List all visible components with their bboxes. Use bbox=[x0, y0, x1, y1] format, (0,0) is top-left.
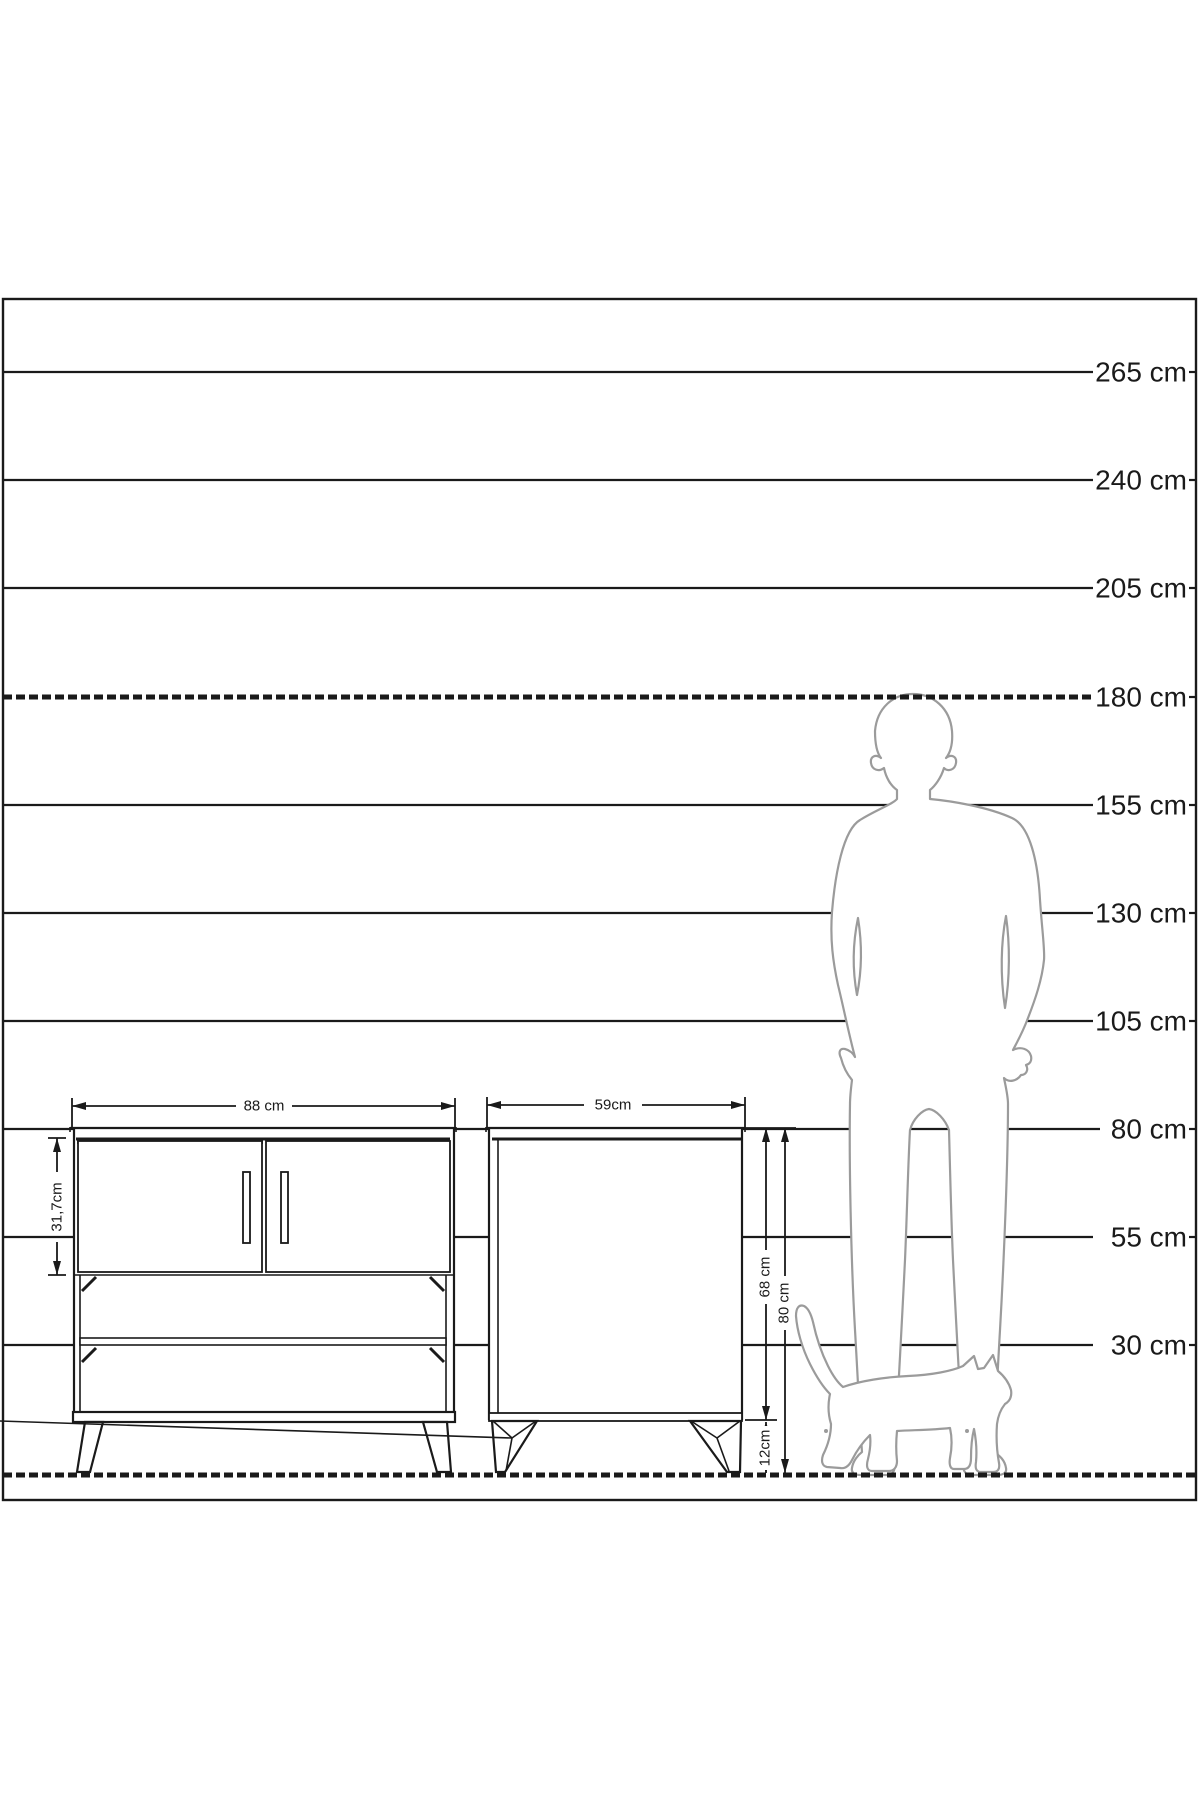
scale-label-55: 55 cm bbox=[1111, 1222, 1187, 1253]
scale-label-130: 130 cm bbox=[1095, 898, 1187, 929]
left-door bbox=[78, 1141, 262, 1272]
right-door-handle bbox=[281, 1172, 288, 1243]
scale-label-205: 205 cm bbox=[1095, 573, 1187, 604]
canvas: 265 cm 240 cm 205 cm 155 cm 130 cm 105 c… bbox=[0, 0, 1200, 1800]
front-width-label: 88 cm bbox=[244, 1098, 285, 1115]
cat-fur-dot-rear bbox=[824, 1429, 828, 1433]
side-view-body-fill bbox=[488, 1128, 743, 1420]
carcass-height-label: 68 cm bbox=[757, 1257, 774, 1298]
front-bottom-panel bbox=[73, 1412, 455, 1422]
side-depth-label: 59cm bbox=[595, 1097, 632, 1114]
cat-fur-dot-front bbox=[965, 1429, 969, 1433]
furniture-scale-diagram: 265 cm 240 cm 205 cm 155 cm 130 cm 105 c… bbox=[0, 0, 1200, 1800]
scale-label-265: 265 cm bbox=[1095, 357, 1187, 388]
middle-shelf bbox=[80, 1338, 446, 1345]
scale-label-80: 80 cm bbox=[1111, 1114, 1187, 1145]
side-bottom-panel bbox=[489, 1413, 742, 1421]
scale-label-105: 105 cm bbox=[1095, 1006, 1187, 1037]
total-height-label: 80 cm bbox=[776, 1283, 793, 1324]
scale-label-180: 180 cm bbox=[1095, 682, 1187, 713]
left-door-handle bbox=[243, 1172, 250, 1243]
scale-label-155: 155 cm bbox=[1095, 790, 1187, 821]
leg-height-dimension: 12cm bbox=[757, 1422, 776, 1473]
leg-height-label: 12cm bbox=[757, 1430, 774, 1467]
right-door bbox=[266, 1141, 450, 1272]
right-sleeve-crease bbox=[1002, 916, 1009, 1008]
scale-label-240: 240 cm bbox=[1095, 465, 1187, 496]
door-height-label: 31,7cm bbox=[49, 1182, 66, 1231]
scale-label-30: 30 cm bbox=[1111, 1330, 1187, 1361]
sideboard-front-view: 88 cm 31,7cm bbox=[48, 1098, 456, 1473]
